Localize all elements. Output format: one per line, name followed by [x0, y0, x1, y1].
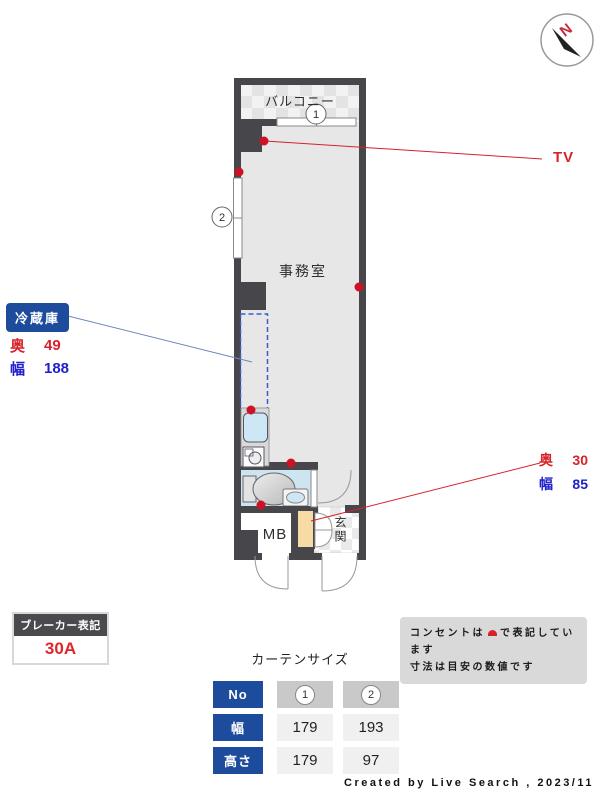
fridge-depth-row: 奥 49: [10, 334, 86, 357]
outlet-dot: [287, 459, 296, 468]
window-2-badge: 2: [212, 207, 232, 227]
entrance-door: [322, 556, 357, 591]
mb-door: [255, 556, 288, 589]
circled-number-1: 1: [295, 685, 315, 705]
outlet-dot: [355, 283, 364, 292]
circled-number-2: 2: [361, 685, 381, 705]
tv-label: TV: [553, 149, 574, 166]
shoebox-depth-label: 奥: [539, 450, 557, 470]
note-line2: 寸法は目安の数値です: [410, 659, 577, 676]
footer-credit: Created by Live Search , 2023/11: [0, 777, 594, 789]
room-label: 事務室: [279, 263, 327, 279]
fridge-width-value: 188: [44, 360, 69, 377]
breaker-box: ブレーカー表記 30A: [12, 612, 109, 665]
breaker-value: 30A: [14, 636, 107, 663]
fridge-callout-title: 冷蔵庫: [6, 303, 69, 332]
mb-label: MB: [263, 526, 288, 543]
fridge-callout-dims: 奥 49 幅 188: [10, 334, 86, 380]
curtain-row-no: No 1 2: [213, 681, 399, 708]
curtain-table-title: カーテンサイズ: [228, 649, 372, 668]
bath-sink-basin: [287, 492, 305, 503]
curtain-no-cell-2: 2: [343, 681, 399, 708]
kitchen: [241, 408, 269, 467]
curtain-no-cell-1: 1: [277, 681, 333, 708]
fridge-callout-line: [68, 316, 252, 362]
breaker-title: ブレーカー表記: [14, 614, 107, 636]
mb-door-opening: [262, 553, 289, 560]
balcony-label: バルコニー: [265, 94, 335, 109]
fridge-width-label: 幅: [10, 358, 28, 379]
shoebox-callout-dims: 奥 30 幅 85: [539, 448, 588, 496]
fridge-width-row: 幅 188: [10, 357, 86, 380]
curtain-row-header: No: [213, 681, 263, 708]
note-line1: コンセントはで表記しています: [410, 625, 577, 659]
fridge-depth-label: 奥: [10, 335, 28, 356]
outlet-dot: [260, 137, 269, 146]
curtain-width-cell-2: 193: [343, 714, 399, 741]
curtain-row-header: 高さ: [213, 747, 263, 774]
curtain-height-cell-2: 97: [343, 747, 399, 774]
shoebox: [297, 510, 314, 548]
outlet-dome-icon: [488, 630, 497, 636]
entrance-label: 玄関: [333, 515, 347, 544]
curtain-table: No 1 2 幅 179 193 高さ 179 97: [213, 681, 399, 780]
outlet-dot: [247, 406, 256, 415]
curtain-row-header: 幅: [213, 714, 263, 741]
mb-block: [241, 530, 258, 553]
compass: N: [541, 14, 593, 66]
entrance-door-opening: [322, 553, 357, 560]
svg-text:1: 1: [313, 109, 319, 121]
shoebox-width-row: 幅 85: [539, 472, 588, 496]
svg-text:2: 2: [219, 212, 225, 224]
curtain-width-cell-1: 179: [277, 714, 333, 741]
window-2: [234, 178, 243, 258]
curtain-height-cell-1: 179: [277, 747, 333, 774]
shoebox-depth-row: 奥 30: [539, 448, 588, 472]
pillar-left: [238, 282, 266, 310]
outlet-dot: [257, 501, 266, 510]
pillar-top-left: [241, 121, 262, 152]
fridge-depth-value: 49: [44, 337, 61, 354]
outlet-dot: [235, 168, 244, 177]
stove-burner: [249, 452, 261, 464]
floorplan-page: 1 2: [0, 0, 600, 800]
curtain-row-height: 高さ 179 97: [213, 747, 399, 774]
shoebox-width-label: 幅: [539, 474, 557, 494]
shoebox-width-value: 85: [566, 476, 588, 492]
shoebox-depth-value: 30: [566, 452, 588, 468]
note-box: コンセントはで表記しています 寸法は目安の数値です: [400, 617, 587, 684]
curtain-row-width: 幅 179 193: [213, 714, 399, 741]
kitchen-sink: [244, 413, 268, 442]
